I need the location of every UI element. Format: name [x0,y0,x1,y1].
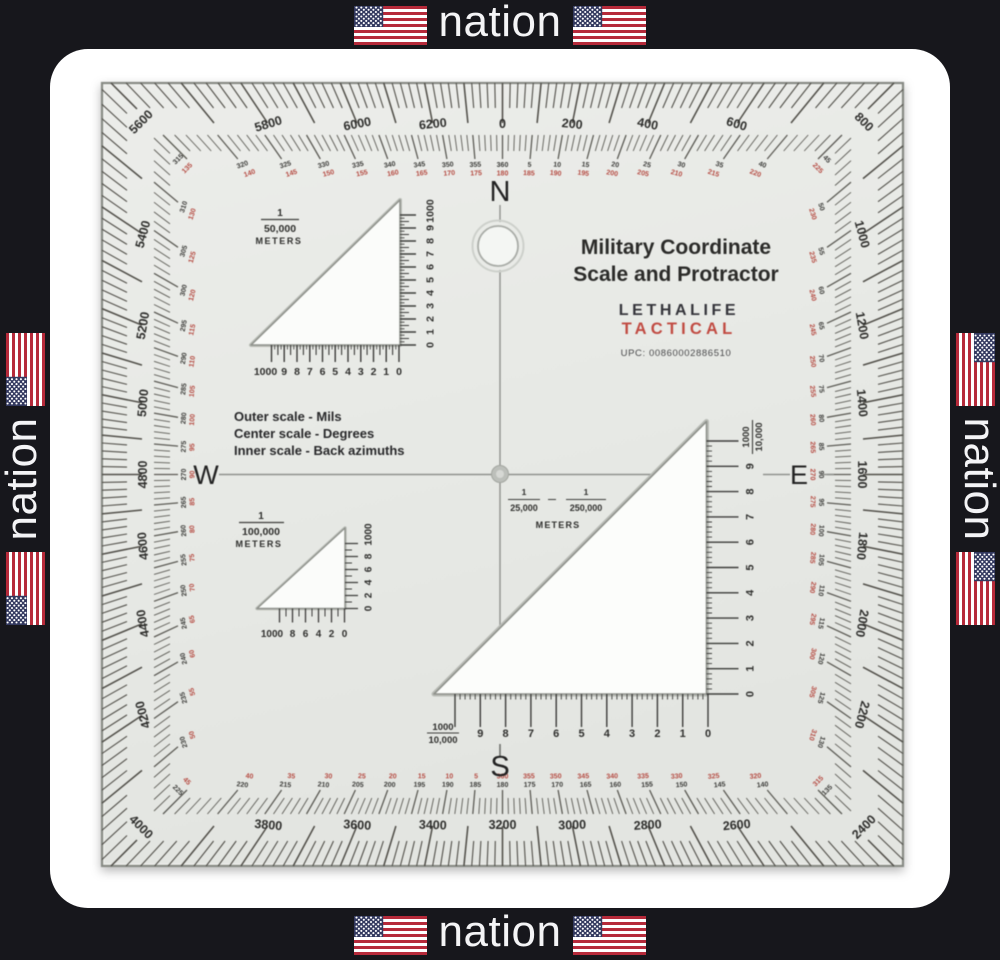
svg-text:2: 2 [425,316,437,322]
svg-text:70: 70 [189,583,197,592]
svg-text:8: 8 [294,366,300,378]
svg-text:5: 5 [578,728,584,740]
svg-text:3400: 3400 [419,818,447,833]
svg-text:Center scale - Degrees: Center scale - Degrees [234,426,374,441]
svg-text:3: 3 [425,303,437,309]
svg-text:5: 5 [474,773,478,780]
svg-text:140: 140 [757,781,769,789]
svg-text:80: 80 [817,414,825,422]
svg-text:85: 85 [189,498,196,506]
svg-text:330: 330 [671,773,683,781]
svg-text:8: 8 [745,489,757,495]
svg-text:250,000: 250,000 [570,503,603,513]
svg-text:7: 7 [528,728,534,740]
svg-text:0: 0 [364,605,375,611]
svg-text:1000: 1000 [741,426,752,447]
svg-text:5: 5 [425,277,437,283]
svg-text:0: 0 [342,629,348,640]
svg-text:LETHALIFE: LETHALIFE [619,302,739,319]
svg-text:9: 9 [477,728,483,740]
svg-text:215: 215 [279,781,291,789]
svg-text:200: 200 [384,781,396,789]
svg-text:3: 3 [745,615,757,621]
svg-text:265: 265 [181,496,188,508]
svg-text:S: S [490,751,509,783]
svg-text:N: N [490,176,511,208]
svg-text:220: 220 [236,781,248,789]
svg-text:METERS: METERS [536,520,581,530]
svg-text:325: 325 [708,773,720,781]
svg-text:6: 6 [320,366,326,378]
svg-text:4: 4 [745,589,757,596]
svg-text:4: 4 [425,290,437,296]
svg-text:340: 340 [606,773,618,781]
svg-text:280: 280 [180,412,188,424]
svg-text:255: 255 [180,554,188,567]
svg-text:85: 85 [817,443,824,451]
svg-text:345: 345 [577,773,589,780]
svg-text:275: 275 [808,496,815,508]
svg-text:350: 350 [442,161,454,169]
svg-text:65: 65 [189,615,197,624]
svg-text:320: 320 [749,773,761,781]
svg-text:1000: 1000 [425,199,437,223]
svg-text:3200: 3200 [489,818,517,832]
svg-text:2600: 2600 [722,817,751,833]
svg-text:40: 40 [245,773,254,781]
svg-text:1000: 1000 [432,722,453,733]
svg-text:4600: 4600 [135,531,151,560]
svg-text:2800: 2800 [633,817,662,833]
svg-text:7: 7 [425,251,437,257]
svg-text:0: 0 [425,342,437,348]
svg-text:355: 355 [469,162,481,170]
svg-text:285: 285 [808,551,816,564]
svg-text:15: 15 [581,161,590,169]
svg-text:E: E [790,460,808,490]
svg-text:1000: 1000 [261,629,284,640]
svg-text:360: 360 [497,162,509,169]
svg-text:6: 6 [425,264,437,270]
svg-text:4: 4 [345,366,351,378]
svg-text:3600: 3600 [343,817,372,833]
svg-text:10,000: 10,000 [428,735,457,746]
svg-text:280: 280 [808,523,816,535]
svg-text:350: 350 [550,773,562,780]
svg-text:2: 2 [654,728,660,740]
svg-text:190: 190 [442,782,454,789]
svg-text:METERS: METERS [255,236,302,246]
svg-text:8: 8 [290,629,296,640]
svg-text:3000: 3000 [558,818,586,833]
svg-text:100: 100 [817,525,825,537]
svg-text:100,000: 100,000 [242,526,280,538]
svg-text:95: 95 [189,443,196,451]
svg-text:Outer scale - Mils: Outer scale - Mils [234,409,342,424]
svg-text:6200: 6200 [418,116,447,133]
svg-text:255: 255 [808,385,816,398]
svg-text:10: 10 [445,773,453,780]
svg-text:170: 170 [443,170,455,178]
svg-text:5: 5 [332,366,338,378]
svg-text:50,000: 50,000 [264,223,296,235]
svg-text:30: 30 [324,773,332,781]
svg-text:200: 200 [561,116,583,132]
svg-text:75: 75 [189,553,197,562]
svg-text:155: 155 [641,781,653,789]
svg-text:4800: 4800 [136,461,150,489]
svg-text:6: 6 [553,728,559,740]
svg-text:9: 9 [425,225,437,231]
svg-text:185: 185 [469,782,481,789]
svg-text:4: 4 [364,579,375,585]
svg-text:5: 5 [527,162,531,169]
svg-text:285: 285 [180,383,188,396]
svg-text:1: 1 [745,666,757,672]
svg-text:80: 80 [189,525,197,533]
svg-text:0: 0 [705,728,711,740]
svg-text:25,000: 25,000 [510,503,538,513]
svg-text:260: 260 [180,524,188,536]
svg-text:25: 25 [358,773,366,781]
svg-text:1: 1 [584,487,589,497]
svg-text:105: 105 [189,385,197,398]
svg-text:8: 8 [503,728,509,740]
svg-text:8: 8 [425,238,437,244]
svg-text:10: 10 [553,161,561,169]
svg-text:5000: 5000 [135,388,151,417]
svg-text:1: 1 [425,329,437,335]
svg-text:160: 160 [609,781,621,789]
svg-text:2: 2 [745,640,757,646]
svg-text:0: 0 [745,691,757,697]
svg-text:3: 3 [629,728,635,740]
svg-text:100: 100 [189,414,197,426]
svg-text:9: 9 [745,463,757,469]
svg-text:175: 175 [524,782,536,789]
svg-text:260: 260 [808,414,816,426]
svg-text:335: 335 [637,773,649,781]
svg-text:95: 95 [817,498,824,506]
svg-text:Inner scale - Back azimuths: Inner scale - Back azimuths [234,443,405,458]
svg-text:6: 6 [364,566,375,572]
svg-text:7: 7 [307,366,313,378]
svg-text:195: 195 [413,782,425,789]
svg-text:Scale and Protractor: Scale and Protractor [573,263,778,286]
svg-text:1400: 1400 [854,389,870,418]
svg-text:75: 75 [817,385,825,394]
svg-text:6: 6 [303,629,309,640]
svg-text:145: 145 [714,781,726,789]
svg-text:1800: 1800 [854,532,870,561]
svg-text:1600: 1600 [855,461,869,489]
svg-text:185: 185 [523,170,535,178]
svg-text:150: 150 [675,781,687,789]
svg-text:7: 7 [745,514,757,520]
svg-text:15: 15 [418,773,426,780]
svg-text:4: 4 [316,629,322,640]
svg-text:165: 165 [580,782,592,789]
svg-text:UPC: 00860002886510: UPC: 00860002886510 [621,348,732,359]
svg-text:3800: 3800 [254,817,283,833]
svg-text:1: 1 [680,728,686,740]
svg-text:35: 35 [287,773,295,781]
svg-text:1: 1 [277,208,283,219]
svg-text:3: 3 [358,366,364,378]
svg-text:6: 6 [745,539,757,545]
svg-text:METERS: METERS [235,539,282,549]
svg-text:2: 2 [329,629,335,640]
svg-text:4: 4 [604,728,611,740]
svg-text:1000: 1000 [364,523,375,546]
svg-text:270: 270 [809,469,816,481]
svg-text:2: 2 [371,366,377,378]
svg-text:1: 1 [258,511,264,522]
svg-text:70: 70 [817,354,825,363]
svg-text:8: 8 [364,553,375,559]
svg-text:170: 170 [551,782,563,789]
svg-text:2: 2 [364,592,375,598]
svg-text:20: 20 [611,161,620,169]
svg-text:1: 1 [522,487,527,497]
svg-text:10,000: 10,000 [754,422,765,451]
svg-text:0: 0 [499,117,506,131]
svg-text:0: 0 [396,366,402,378]
svg-text:105: 105 [817,554,825,567]
svg-text:1: 1 [383,366,389,378]
svg-text:1000: 1000 [254,366,278,378]
svg-text:270: 270 [181,469,188,481]
svg-text:Military Coordinate: Military Coordinate [581,236,771,259]
svg-text:275: 275 [181,441,188,453]
svg-text:205: 205 [352,781,364,789]
svg-text:190: 190 [550,170,562,178]
svg-text:175: 175 [470,170,482,178]
svg-text:265: 265 [808,441,815,453]
svg-text:9: 9 [281,366,287,378]
svg-text:TACTICAL: TACTICAL [622,320,737,338]
svg-text:20: 20 [389,773,397,780]
svg-text:210: 210 [317,781,329,789]
svg-text:5: 5 [745,564,757,570]
svg-text:W: W [193,460,219,490]
svg-text:355: 355 [523,773,535,780]
